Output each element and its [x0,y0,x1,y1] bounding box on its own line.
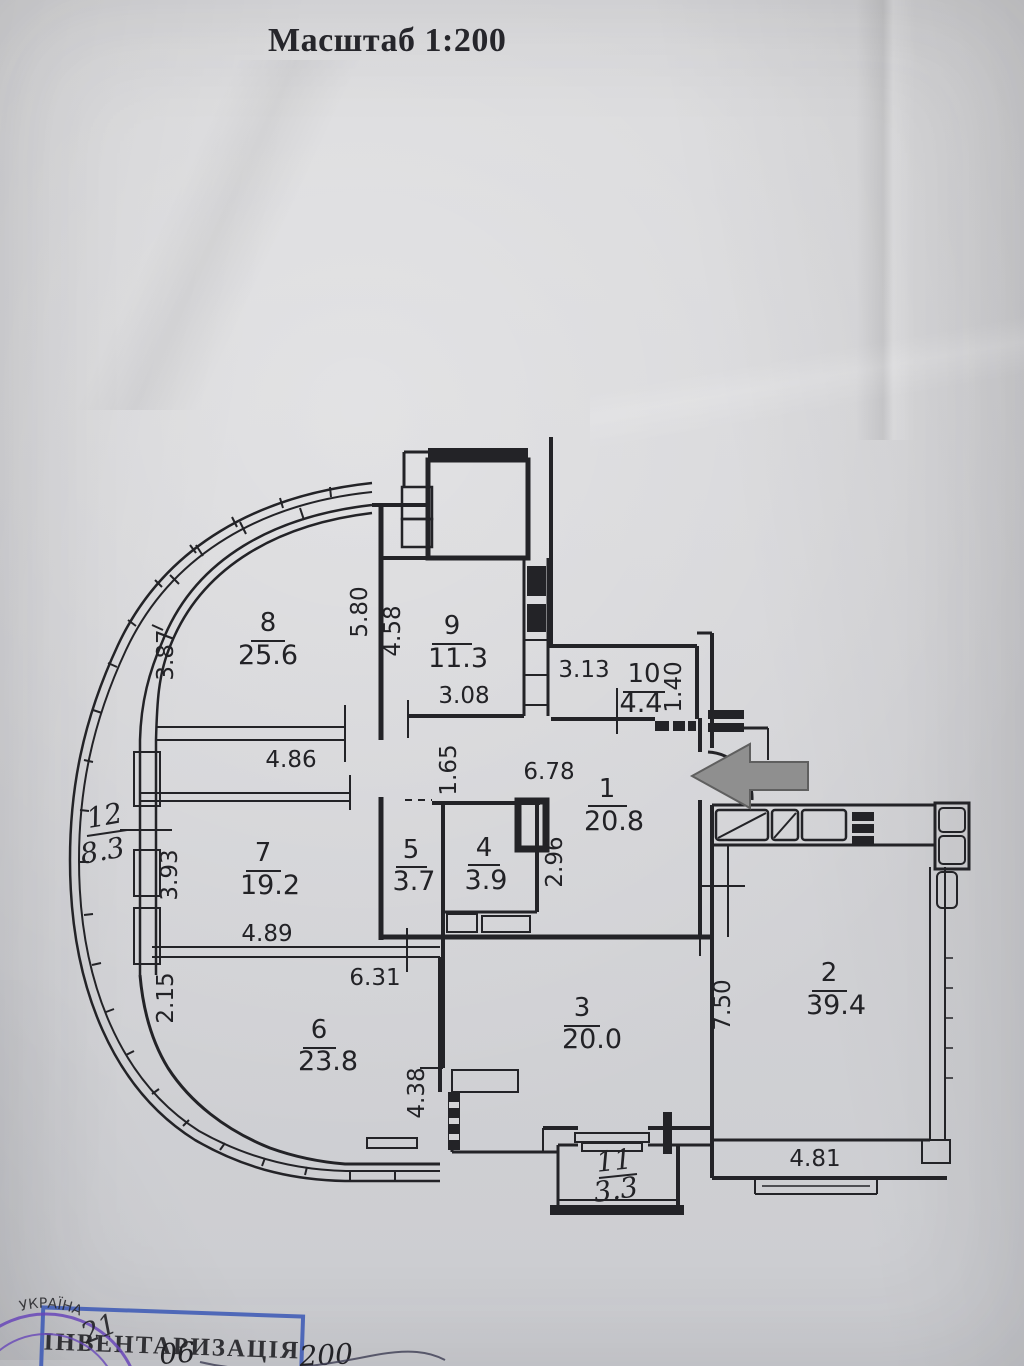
room-1-area: 20.8 [584,806,644,837]
room-3-area: 20.0 [562,1024,622,1055]
dim-3-87: 3.87 [153,629,179,680]
dim-3-93: 3.93 [157,849,183,900]
room-2-number: 2 [821,958,838,988]
room-6-area: 23.8 [298,1046,358,1077]
room-8-area: 25.6 [238,640,298,671]
room-9-number: 9 [444,611,461,641]
room-9-area: 11.3 [428,643,488,674]
fixtures [447,914,530,932]
room-10-number: 10 [627,659,660,689]
dim-6-78: 6.78 [523,759,574,785]
room-11-area: 3.3 [591,1170,640,1209]
stamp-group: ІНВЕНТАРИЗАЦІЯ УКРАЇНА 21 06 200 [0,1295,445,1366]
labels: 1 20.8 2 39.4 3 20.0 4 3.9 5 3.7 6 23.8 … [78,586,867,1209]
room-3-number: 3 [574,993,591,1023]
dim-7-50: 7.50 [710,979,736,1030]
scanned-floor-plan-page: Масштаб 1:200 [0,0,1024,1366]
handwriting-date-year: 200 [298,1337,354,1366]
left-window-band [120,505,440,1164]
dim-6-31: 6.31 [349,965,400,991]
dim-4-86: 4.86 [265,747,316,773]
dim-1-65: 1.65 [436,744,462,795]
dim-2-15: 2.15 [153,972,179,1023]
dim-2-96: 2.96 [542,836,568,887]
room-4-number: 4 [476,833,493,863]
dim-3-08: 3.08 [438,683,489,709]
floor-plan-svg: 1 20.8 2 39.4 3 20.0 4 3.9 5 3.7 6 23.8 … [0,0,1024,1366]
outer-glazing [70,483,440,1181]
dim-1-40: 1.40 [661,661,687,712]
room-2-area: 39.4 [806,990,866,1021]
dim-4-58: 4.58 [380,605,406,656]
room-6-number: 6 [311,1015,328,1045]
shaft [402,437,551,716]
room-8-number: 8 [260,608,277,638]
dim-5-80: 5.80 [347,586,373,637]
dim-4-81: 4.81 [789,1146,840,1172]
dim-4-89: 4.89 [241,921,292,947]
room-5-number: 5 [403,835,420,865]
room-10-area: 4.4 [620,688,663,719]
room-4-area: 3.9 [465,865,508,896]
room-7-area: 19.2 [240,870,300,901]
dim-3-13: 3.13 [558,657,609,683]
handwriting-date-day: 06 [158,1336,196,1366]
room-5-area: 3.7 [393,866,436,897]
room-7-number: 7 [255,838,272,868]
entrance-arrow [692,744,808,808]
dim-4-38: 4.38 [404,1067,430,1118]
room-1-number: 1 [599,774,616,804]
room-12-area: 8.3 [78,831,128,871]
room-12-number: 12 [84,796,125,835]
